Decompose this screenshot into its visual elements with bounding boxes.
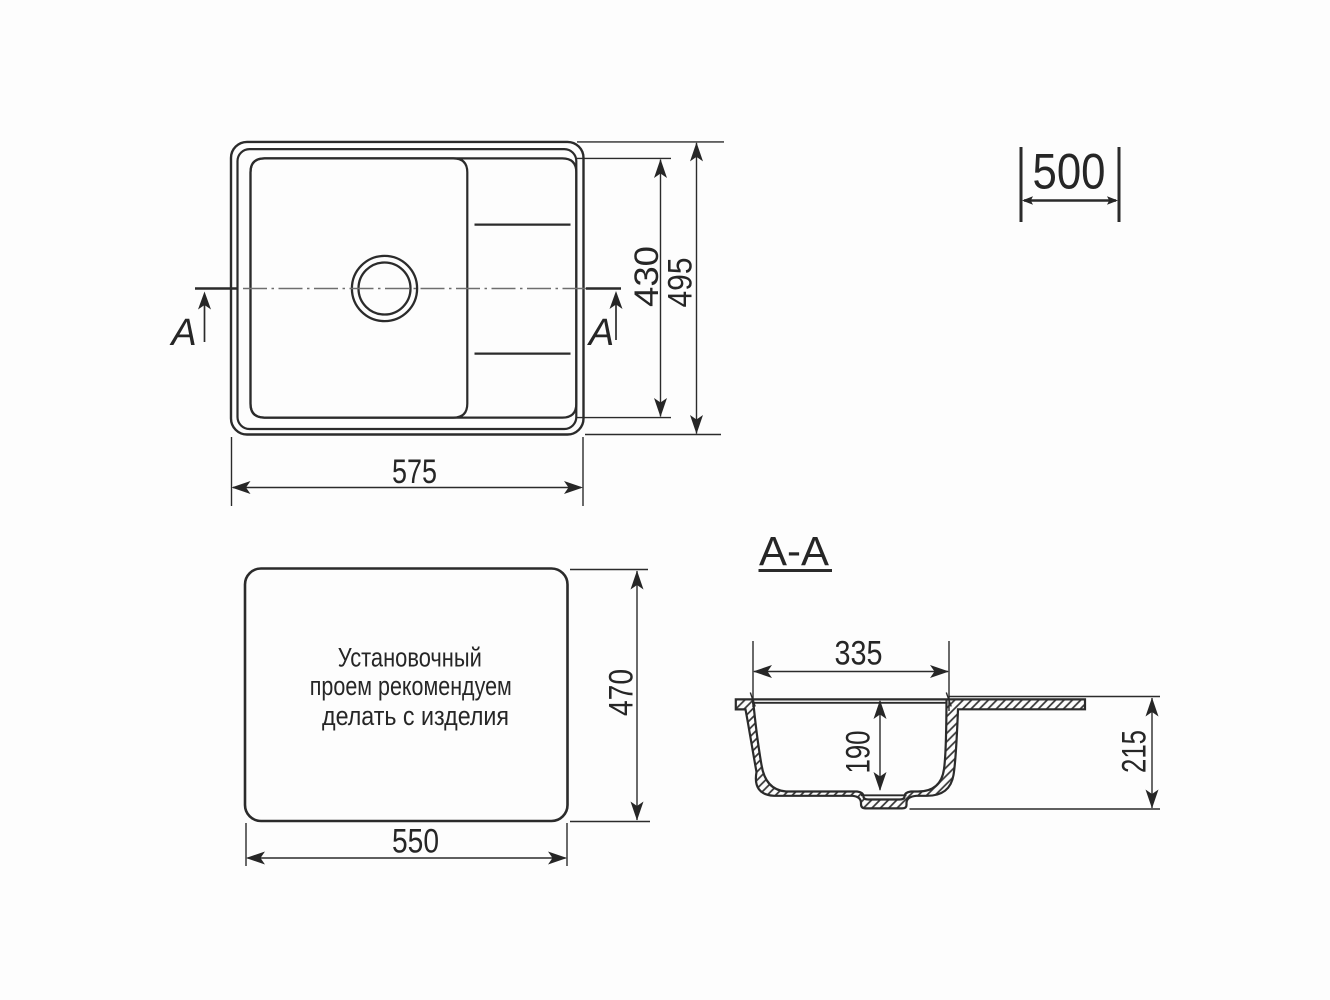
svg-text:500: 500: [1033, 144, 1106, 200]
svg-text:проем рекомендуем: проем рекомендуем: [310, 671, 512, 701]
svg-text:495: 495: [662, 258, 700, 308]
svg-text:335: 335: [835, 635, 883, 673]
svg-text:Установочный: Установочный: [338, 643, 482, 673]
svg-text:430: 430: [628, 246, 666, 307]
svg-text:550: 550: [392, 823, 439, 861]
svg-text:A-A: A-A: [759, 528, 830, 574]
svg-text:190: 190: [840, 731, 878, 774]
svg-text:A: A: [587, 312, 614, 354]
svg-text:470: 470: [603, 669, 641, 716]
svg-text:A: A: [169, 312, 196, 354]
svg-text:делать с изделия: делать с изделия: [322, 701, 509, 731]
svg-text:215: 215: [1116, 730, 1154, 773]
svg-text:575: 575: [392, 453, 437, 491]
